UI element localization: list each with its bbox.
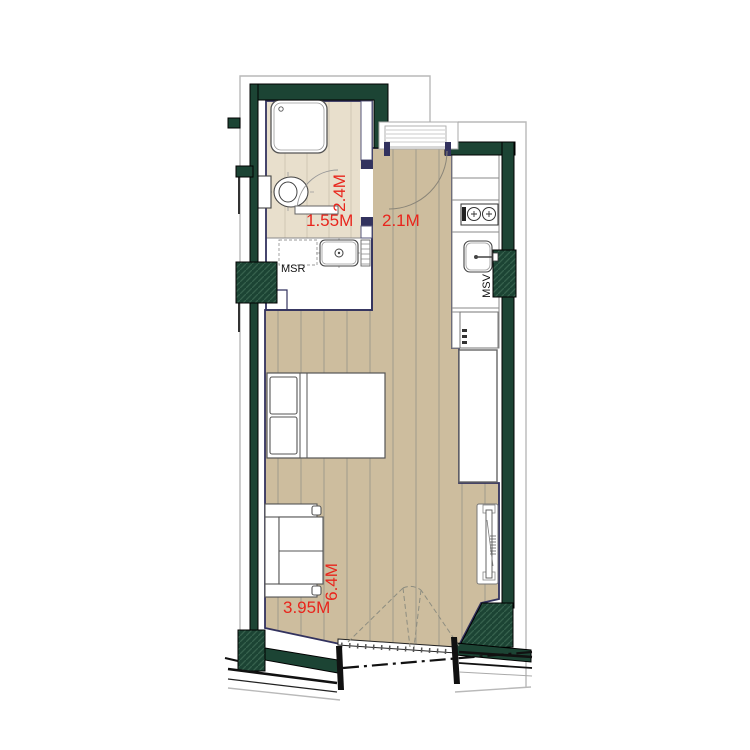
wardrobe xyxy=(459,350,497,482)
radiator xyxy=(477,504,498,584)
dimension-room-length: 6.4M xyxy=(322,563,341,601)
wall-right xyxy=(502,142,514,608)
floor-plan-canvas: 1.55M 2.4M 2.1M 6.4M 3.95M MSR MSV xyxy=(0,0,750,750)
bed xyxy=(267,373,385,458)
pillow-bottom xyxy=(270,417,297,454)
towel-rack xyxy=(361,240,370,266)
shower-tray xyxy=(271,100,327,153)
bathroom-sink xyxy=(316,238,360,268)
dimension-entry-width: 2.1M xyxy=(382,211,420,230)
msr-label: MSR xyxy=(281,263,306,275)
wall-column-left xyxy=(236,262,277,303)
msv-label: MSV xyxy=(481,273,493,298)
wall-stub-left xyxy=(236,166,253,177)
wall-stub-upper xyxy=(228,118,240,128)
wall-corner-bottom-left xyxy=(238,630,265,671)
dimension-bathroom-depth: 2.4M xyxy=(330,174,349,212)
wall-band-bottom-left xyxy=(265,648,338,673)
kitchen-hob xyxy=(461,204,498,225)
shower-drain-icon xyxy=(279,107,283,111)
appliance-marks xyxy=(462,329,467,344)
dimension-room-width: 3.95M xyxy=(283,598,330,617)
kitchen-appliance xyxy=(460,312,498,348)
sofa xyxy=(265,504,323,597)
floor-plan-page: 1.55M 2.4M 2.1M 6.4M 3.95M MSR MSV xyxy=(0,0,750,750)
dimension-bathroom-width: 1.55M xyxy=(306,211,353,230)
hob-control xyxy=(462,207,466,221)
pillow-top xyxy=(270,377,297,414)
post-left xyxy=(336,646,344,690)
